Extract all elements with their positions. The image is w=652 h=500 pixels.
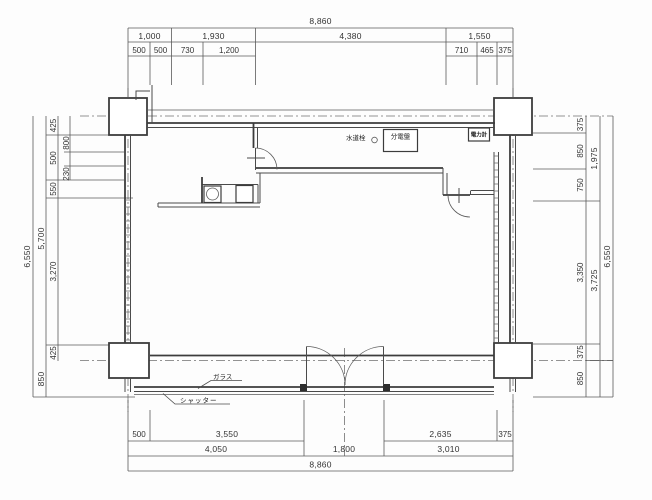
dim-bottom: 4,050 xyxy=(205,444,227,454)
center-lines xyxy=(80,88,613,456)
dim-right-chain: 3,350 xyxy=(576,262,585,283)
dim-right-chain: 375 xyxy=(576,345,585,359)
floor-plan-drawing: 8,860 1,000 1,930 4,380 1,550 500 500 73… xyxy=(0,0,652,500)
dim-top: 1,930 xyxy=(202,31,224,41)
dim-right-chain: 375 xyxy=(576,117,585,131)
dim-top-sub: 465 xyxy=(480,46,494,55)
dim-right-mid: 1,975 xyxy=(589,147,599,169)
dim-top: 1,000 xyxy=(138,31,160,41)
dim-top-sub: 375 xyxy=(498,46,512,55)
interior-partitions xyxy=(256,168,494,195)
door-jamb-left xyxy=(300,384,307,391)
dim-left-overall: 6,550 xyxy=(22,245,32,267)
right-dimension-column: 375 850 750 3,350 375 850 1,975 3,725 6,… xyxy=(533,116,613,397)
storefront xyxy=(134,387,494,395)
dim-bottom: 1,800 xyxy=(333,444,355,454)
dim-left-sub: 800 xyxy=(62,136,71,150)
dim-left-chain: 500 xyxy=(49,151,58,165)
dim-bottom-sub: 2,635 xyxy=(429,429,451,439)
top-dimension-table: 8,860 1,000 1,930 4,380 1,550 500 500 73… xyxy=(128,16,513,97)
dim-top: 4,380 xyxy=(339,31,361,41)
power-meter-label: 電力計 xyxy=(471,131,488,139)
dim-right-overall: 6,550 xyxy=(602,245,612,267)
bottom-dimension-table: 500 3,550 2,635 375 4,050 1,800 3,010 8,… xyxy=(128,400,513,471)
dim-bottom: 3,010 xyxy=(437,444,459,454)
kitchen-counter xyxy=(158,173,260,207)
dim-top-overall: 8,860 xyxy=(309,16,331,26)
glass-label: ガラス xyxy=(213,372,232,381)
column-top-left xyxy=(109,98,147,135)
dim-top-sub: 710 xyxy=(455,46,469,55)
dim-left-mid: 850 xyxy=(36,372,46,387)
water-tap-label: 水道栓 xyxy=(346,133,366,142)
dim-right-chain: 850 xyxy=(576,144,585,158)
distribution-board-label: 分電盤 xyxy=(391,132,411,141)
swing-door-upper xyxy=(247,123,277,170)
dim-bottom-sub: 375 xyxy=(498,430,512,439)
dim-bottom-sub: 3,550 xyxy=(216,429,238,439)
wall-hatching xyxy=(125,156,499,340)
dim-bottom-sub: 500 xyxy=(132,430,146,439)
dim-top-sub: 1,200 xyxy=(219,46,240,55)
dim-bottom-overall: 8,860 xyxy=(309,460,331,470)
dim-right-chain: 850 xyxy=(576,371,585,385)
dim-left-chain: 425 xyxy=(49,346,58,360)
dim-left-chain: 425 xyxy=(49,118,58,132)
dim-left-mid: 5,700 xyxy=(36,227,46,249)
water-tap-icon xyxy=(372,137,378,143)
dim-left-sub: 230 xyxy=(62,167,71,181)
exterior-walls xyxy=(125,85,516,392)
shutter-label: シャッター xyxy=(180,396,218,405)
dim-left-chain: 3,270 xyxy=(49,261,58,282)
counter-equipment xyxy=(236,186,253,203)
dim-left-chain: 550 xyxy=(49,182,58,196)
dim-right-chain: 750 xyxy=(576,178,585,192)
column-top-right xyxy=(494,98,532,135)
dim-top-sub: 500 xyxy=(154,46,168,55)
door-jamb-right xyxy=(383,384,390,391)
floor-plan-canvas: 8,860 1,000 1,930 4,380 1,550 500 500 73… xyxy=(0,0,652,500)
dim-top-sub: 500 xyxy=(132,46,146,55)
fixture-annotations: 水道栓 分電盤 電力計 ガラス シャッター xyxy=(163,128,490,405)
column-bottom-left xyxy=(109,343,149,378)
dim-top-sub: 730 xyxy=(181,46,195,55)
dim-right-mid: 3,725 xyxy=(589,269,599,291)
column-bottom-right xyxy=(494,343,532,378)
dim-top: 1,550 xyxy=(468,31,490,41)
double-entry-door xyxy=(300,347,390,392)
